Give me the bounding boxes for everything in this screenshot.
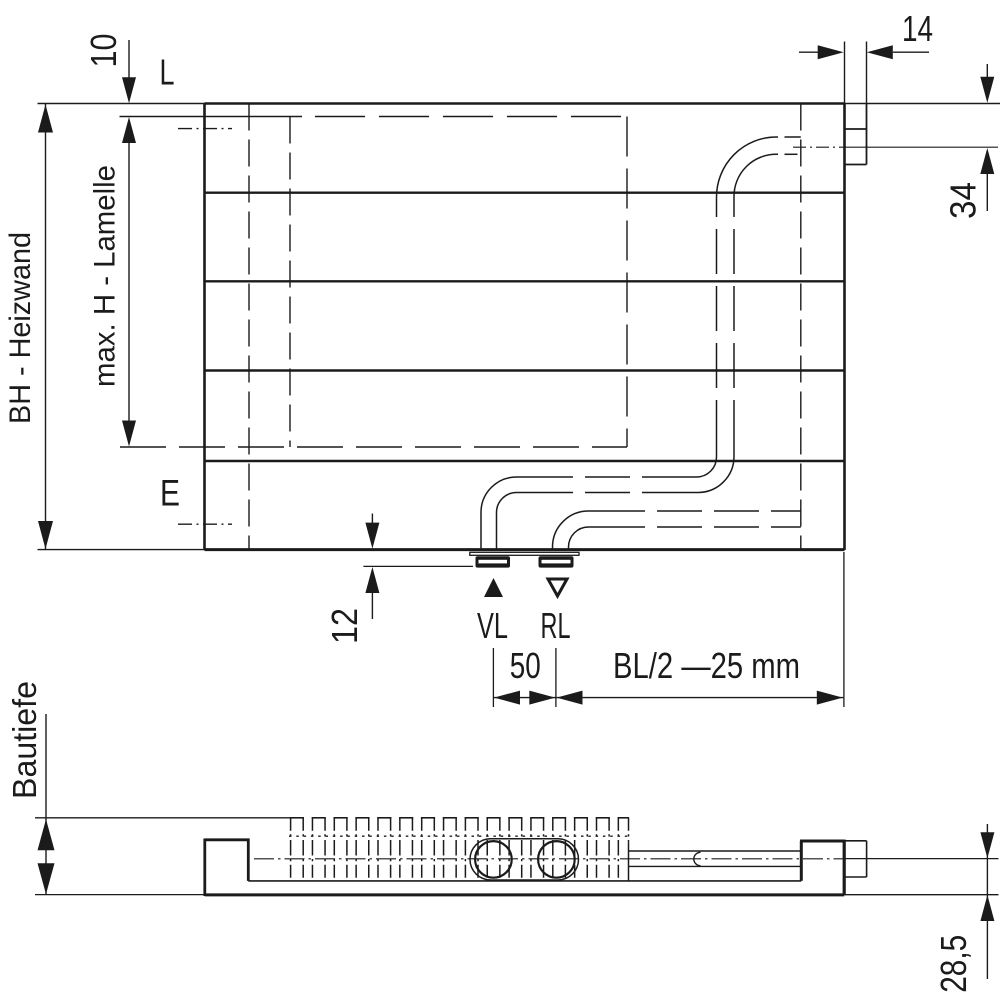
svg-text:VL: VL	[477, 605, 508, 646]
svg-text:BL/2 —25 mm: BL/2 —25 mm	[613, 645, 800, 686]
svg-text:max. H - Lamelle: max. H - Lamelle	[89, 165, 122, 387]
svg-text:Bautiefe: Bautiefe	[6, 681, 43, 799]
svg-text:E: E	[160, 473, 180, 514]
svg-text:28,5: 28,5	[933, 935, 974, 993]
svg-text:14: 14	[902, 8, 933, 49]
svg-text:34: 34	[943, 182, 984, 219]
svg-text:BH - Heizwand: BH - Heizwand	[4, 232, 37, 424]
svg-text:12: 12	[324, 608, 365, 644]
svg-text:50: 50	[510, 645, 541, 686]
svg-text:RL: RL	[541, 605, 571, 646]
svg-text:L: L	[160, 52, 175, 93]
svg-text:10: 10	[83, 34, 124, 68]
